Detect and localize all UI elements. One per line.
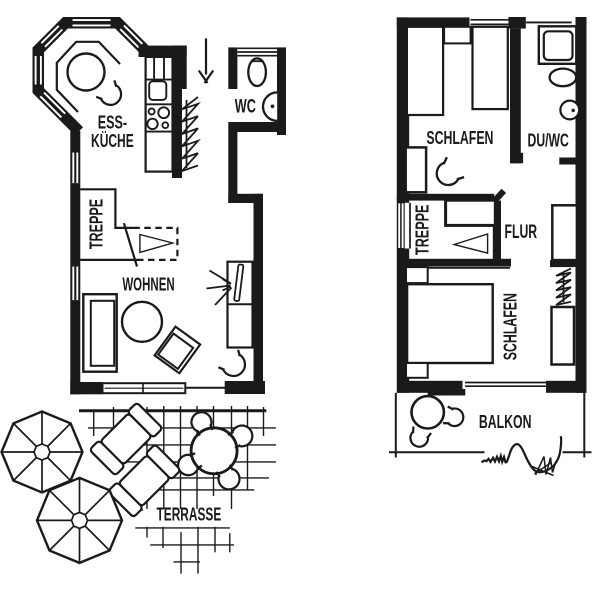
svg-text:ESS-: ESS- — [98, 112, 127, 132]
svg-text:KÜCHE: KÜCHE — [91, 131, 134, 151]
svg-text:TERRASSE: TERRASSE — [157, 505, 222, 525]
svg-text:TREPPE: TREPPE — [413, 205, 433, 255]
svg-text:WC: WC — [235, 97, 256, 118]
svg-text:TREPPE: TREPPE — [87, 199, 107, 249]
svg-text:SCHLAFEN: SCHLAFEN — [500, 293, 520, 360]
svg-text:BALKON: BALKON — [479, 412, 532, 432]
svg-text:DU/WC: DU/WC — [528, 130, 569, 150]
svg-text:FLUR: FLUR — [505, 222, 538, 243]
svg-text:WOHNEN: WOHNEN — [122, 275, 174, 295]
svg-text:SCHLAFEN: SCHLAFEN — [426, 128, 493, 148]
